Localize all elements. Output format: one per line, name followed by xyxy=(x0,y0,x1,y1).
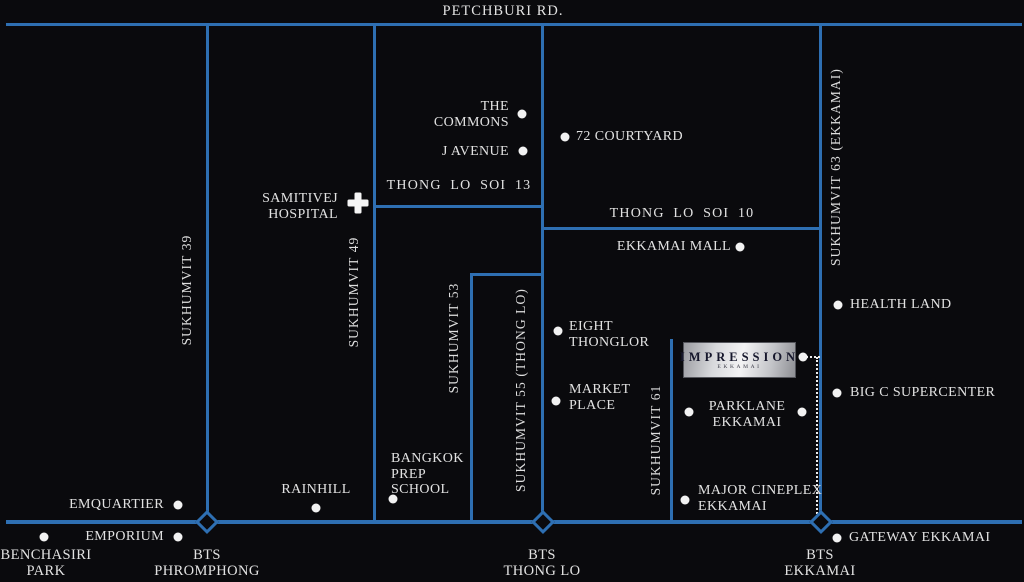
road-sukhumvit-53 xyxy=(470,273,473,522)
bts-marker-thonglo xyxy=(530,510,554,534)
label-sukhumvit-55: SUKHUMVIT 55 (THONG LO) xyxy=(513,288,529,492)
label-sukhumvit-39: SUKHUMVIT 39 xyxy=(179,235,195,346)
label-sukhumvit-53: SUKHUMVIT 53 xyxy=(446,283,462,394)
label-eight-thonglor: EIGHT THONGLOR xyxy=(569,319,649,350)
marker-dot-72-courtyard xyxy=(561,133,570,142)
label-sukhumvit-49: SUKHUMVIT 49 xyxy=(346,237,362,348)
road-petchburi xyxy=(6,23,1022,26)
road-sukhumvit-61 xyxy=(670,339,673,522)
label-major-cineplex: MAJOR CINEPLEX EKKAMAI xyxy=(698,483,822,514)
label-big-c-supercenter: BIG C SUPERCENTER xyxy=(850,385,995,401)
road-sukhumvit-main xyxy=(6,520,1022,524)
road-sukhumvit-49 xyxy=(373,24,376,522)
marker-dot-parklane-left xyxy=(685,408,694,417)
label-benchasiri-park: BENCHASIRI PARK xyxy=(0,548,91,579)
road-sukhumvit-63-ekkamai xyxy=(819,24,822,522)
location-map: IMPRESSION EKKAMAI PETCHBURI RD. SUKHUMV… xyxy=(0,0,1024,582)
label-bangkok-prep-school: BANGKOK PREP SCHOOL xyxy=(391,451,464,498)
label-emquartier: EMQUARTIER xyxy=(69,497,164,513)
marker-dot-market-place xyxy=(552,397,561,406)
marker-dot-emporium xyxy=(174,533,183,542)
label-j-avenue: J AVENUE xyxy=(442,144,509,160)
marker-dot-rainhill xyxy=(312,504,321,513)
road-thonglo-soi-13 xyxy=(374,205,543,208)
marker-dot-benchasiri xyxy=(40,533,49,542)
label-samitivej-hospital: SAMITIVEJ HOSPITAL xyxy=(262,191,338,222)
label-market-place: MARKET PLACE xyxy=(569,382,631,413)
label-parklane-ekkamai: PARKLANE EKKAMAI xyxy=(709,399,786,430)
label-health-land: HEALTH LAND xyxy=(850,297,951,313)
label-sukhumvit-61: SUKHUMVIT 61 xyxy=(648,385,664,496)
hospital-cross-icon xyxy=(348,193,369,214)
label-bts-ekkamai: BTS EKKAMAI xyxy=(784,548,855,579)
label-thonglo-soi-10: THONG LO SOI 10 xyxy=(610,206,755,222)
marker-dot-the-commons xyxy=(518,110,527,119)
marker-dot-emquartier xyxy=(174,501,183,510)
marker-dot-ekkamai-mall xyxy=(736,243,745,252)
impression-name: IMPRESSION xyxy=(680,350,799,364)
bts-marker-phromphong xyxy=(195,510,219,534)
marker-dot-eight-thonglor xyxy=(554,327,563,336)
marker-dot-parklane-right xyxy=(798,408,807,417)
impression-property-box: IMPRESSION EKKAMAI xyxy=(683,342,796,378)
label-sukhumvit-63: SUKHUMVIT 63 (EKKAMAI) xyxy=(828,68,844,266)
label-rainhill: RAINHILL xyxy=(281,482,350,498)
road-sukhumvit-39 xyxy=(206,24,209,522)
road-thonglo-soi-10 xyxy=(542,227,821,230)
label-petchburi-rd: PETCHBURI RD. xyxy=(443,4,564,20)
label-ekkamai-mall: EKKAMAI MALL xyxy=(617,239,731,255)
marker-dot-gateway xyxy=(833,534,842,543)
label-72-courtyard: 72 COURTYARD xyxy=(576,129,683,145)
label-thonglo-soi-13: THONG LO SOI 13 xyxy=(387,178,532,194)
label-emporium: EMPORIUM xyxy=(85,529,164,545)
marker-dot-health-land xyxy=(834,301,843,310)
label-bts-thonglo: BTS THONG LO xyxy=(504,548,581,579)
marker-dot-big-c xyxy=(833,389,842,398)
road-sukhumvit-53-connector xyxy=(470,273,544,276)
label-the-commons: THE COMMONS xyxy=(434,99,509,130)
label-gateway-ekkamai: GATEWAY EKKAMAI xyxy=(849,530,990,546)
impression-subtitle: EKKAMAI xyxy=(717,364,761,371)
label-bts-phromphong: BTS PHROMPHONG xyxy=(154,548,260,579)
marker-dot-j-avenue xyxy=(519,147,528,156)
marker-dot-major-cineplex xyxy=(681,496,690,505)
marker-dot-impression xyxy=(799,353,808,362)
